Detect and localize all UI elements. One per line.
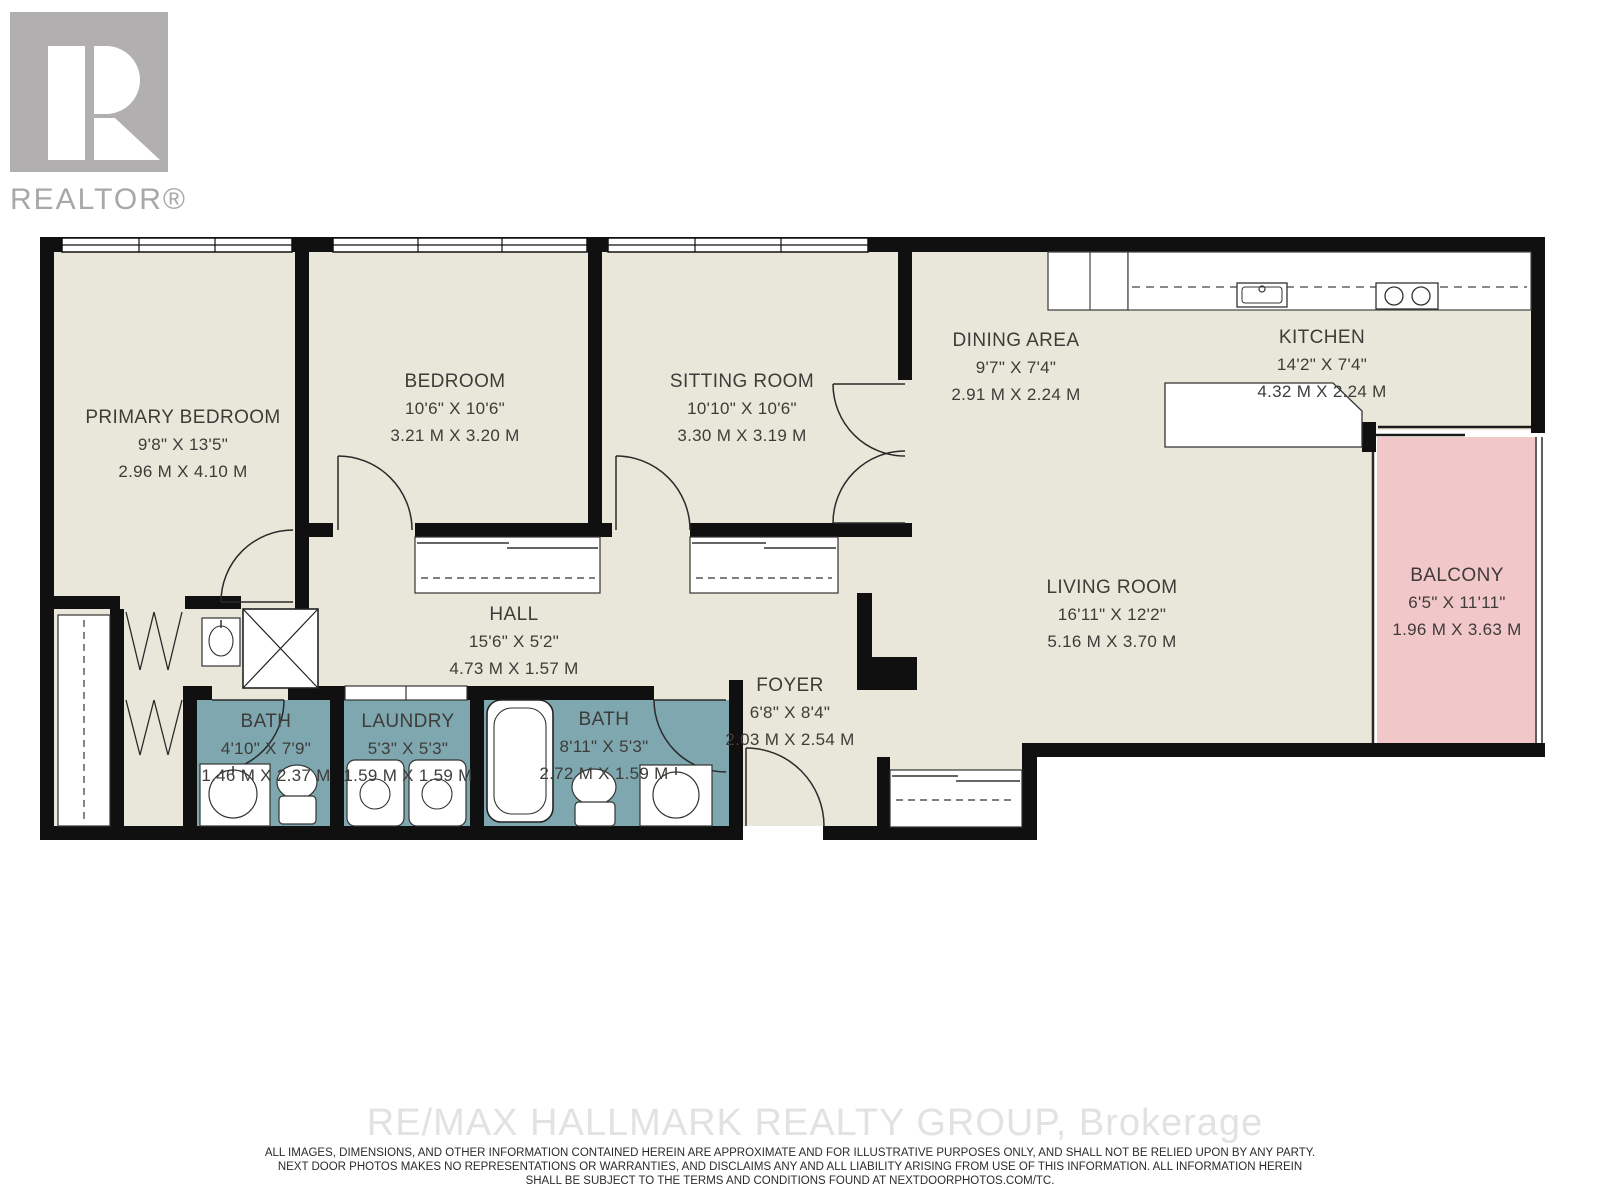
room-dim-metric: 2.91 M X 2.24 M <box>951 385 1080 405</box>
room-label-sitting-room: SITTING ROOM 10'10" X 10'6" 3.30 M X 3.1… <box>670 372 814 446</box>
room-name: FOYER <box>725 676 854 696</box>
room-dim-metric: 5.16 M X 3.70 M <box>1046 632 1177 652</box>
room-label-hall: HALL 15'6" X 5'2" 4.73 M X 1.57 M <box>449 605 578 679</box>
ensuite-sink-icon <box>202 618 240 666</box>
room-name: PRIMARY BEDROOM <box>85 408 280 428</box>
room-dim-metric: 2.96 M X 4.10 M <box>85 462 280 482</box>
windows <box>62 238 868 252</box>
room-name: BEDROOM <box>390 372 519 392</box>
brokerage-watermark: RE/MAX HALLMARK REALTY GROUP, Brokerage <box>367 1102 1263 1145</box>
balcony-sliding-door <box>1372 427 1531 435</box>
hall-closet-1 <box>415 537 600 593</box>
shower-icon <box>243 609 318 688</box>
room-label-living-room: LIVING ROOM 16'11" X 12'2" 5.16 M X 3.70… <box>1046 578 1177 652</box>
room-name: SITTING ROOM <box>670 372 814 392</box>
room-name: BALCONY <box>1392 566 1521 586</box>
room-label-bath-1: BATH 4'10" X 7'9" 1.46 M X 2.37 M <box>201 712 330 786</box>
room-name: LIVING ROOM <box>1046 578 1177 598</box>
disclaimer-line-3: SHALL BE SUBJECT TO THE TERMS AND CONDIT… <box>265 1174 1315 1188</box>
foyer-closet <box>890 770 1022 827</box>
kitchen-counter <box>1128 252 1531 310</box>
room-dim-metric: 4.73 M X 1.57 M <box>449 659 578 679</box>
room-dim-imperial: 10'10" X 10'6" <box>670 399 814 419</box>
room-name: HALL <box>449 605 578 625</box>
floor-plan <box>0 0 1600 1200</box>
room-name: LAUNDRY <box>343 712 472 732</box>
floorplan-page: { "logo": { "brand_text": "REALTOR®" }, … <box>0 0 1600 1200</box>
window-primary-bedroom <box>62 238 292 252</box>
room-dim-imperial: 6'5" X 11'11" <box>1392 593 1521 613</box>
window-bedroom <box>333 238 587 252</box>
kitchen-sink-icon <box>1237 283 1287 307</box>
disclaimer-line-2: NEXT DOOR PHOTOS MAKES NO REPRESENTATION… <box>265 1160 1315 1174</box>
fridge-icon <box>1048 252 1128 310</box>
room-label-primary-bedroom: PRIMARY BEDROOM 9'8" X 13'5" 2.96 M X 4.… <box>85 408 280 482</box>
room-dim-imperial: 10'6" X 10'6" <box>390 399 519 419</box>
stove-icon <box>1376 283 1438 309</box>
room-dim-imperial: 5'3" X 5'3" <box>343 739 472 759</box>
hall-closet-2 <box>690 537 838 593</box>
room-dim-imperial: 15'6" X 5'2" <box>449 632 578 652</box>
room-name: BATH <box>539 710 668 730</box>
room-dim-imperial: 6'8" X 8'4" <box>725 703 854 723</box>
linen-closet <box>58 615 110 826</box>
room-dim-imperial: 16'11" X 12'2" <box>1046 605 1177 625</box>
room-label-bath-2: BATH 8'11" X 5'3" 2.72 M X 1.59 M <box>539 710 668 784</box>
entry-opening <box>743 826 823 840</box>
room-label-balcony: BALCONY 6'5" X 11'11" 1.96 M X 3.63 M <box>1392 566 1521 640</box>
room-name: DINING AREA <box>951 331 1080 351</box>
room-label-laundry: LAUNDRY 5'3" X 5'3" 1.59 M X 1.59 M <box>343 712 472 786</box>
room-label-bedroom: BEDROOM 10'6" X 10'6" 3.21 M X 3.20 M <box>390 372 519 446</box>
room-name: BATH <box>201 712 330 732</box>
room-dim-metric: 1.96 M X 3.63 M <box>1392 620 1521 640</box>
room-dim-imperial: 9'8" X 13'5" <box>85 435 280 455</box>
room-dim-metric: 3.21 M X 3.20 M <box>390 426 519 446</box>
room-name: KITCHEN <box>1257 328 1386 348</box>
disclaimer-line-1: ALL IMAGES, DIMENSIONS, AND OTHER INFORM… <box>265 1146 1315 1160</box>
room-dim-metric: 1.46 M X 2.37 M <box>201 766 330 786</box>
laundry-bifold-doors <box>345 686 467 700</box>
room-dim-metric: 1.59 M X 1.59 M <box>343 766 472 786</box>
room-dim-metric: 3.30 M X 3.19 M <box>670 426 814 446</box>
room-label-foyer: FOYER 6'8" X 8'4" 2.03 M X 2.54 M <box>725 676 854 750</box>
room-dim-imperial: 8'11" X 5'3" <box>539 737 668 757</box>
disclaimer-text: ALL IMAGES, DIMENSIONS, AND OTHER INFORM… <box>265 1146 1315 1188</box>
room-dim-metric: 4.32 M X 2.24 M <box>1257 382 1386 402</box>
room-dim-imperial: 9'7" X 7'4" <box>951 358 1080 378</box>
room-label-dining-area: DINING AREA 9'7" X 7'4" 2.91 M X 2.24 M <box>951 331 1080 405</box>
room-dim-metric: 2.03 M X 2.54 M <box>725 730 854 750</box>
room-label-kitchen: KITCHEN 14'2" X 7'4" 4.32 M X 2.24 M <box>1257 328 1386 402</box>
room-dim-imperial: 14'2" X 7'4" <box>1257 355 1386 375</box>
window-sitting-room <box>608 238 868 252</box>
room-dim-metric: 2.72 M X 1.59 M <box>539 764 668 784</box>
room-dim-imperial: 4'10" X 7'9" <box>201 739 330 759</box>
